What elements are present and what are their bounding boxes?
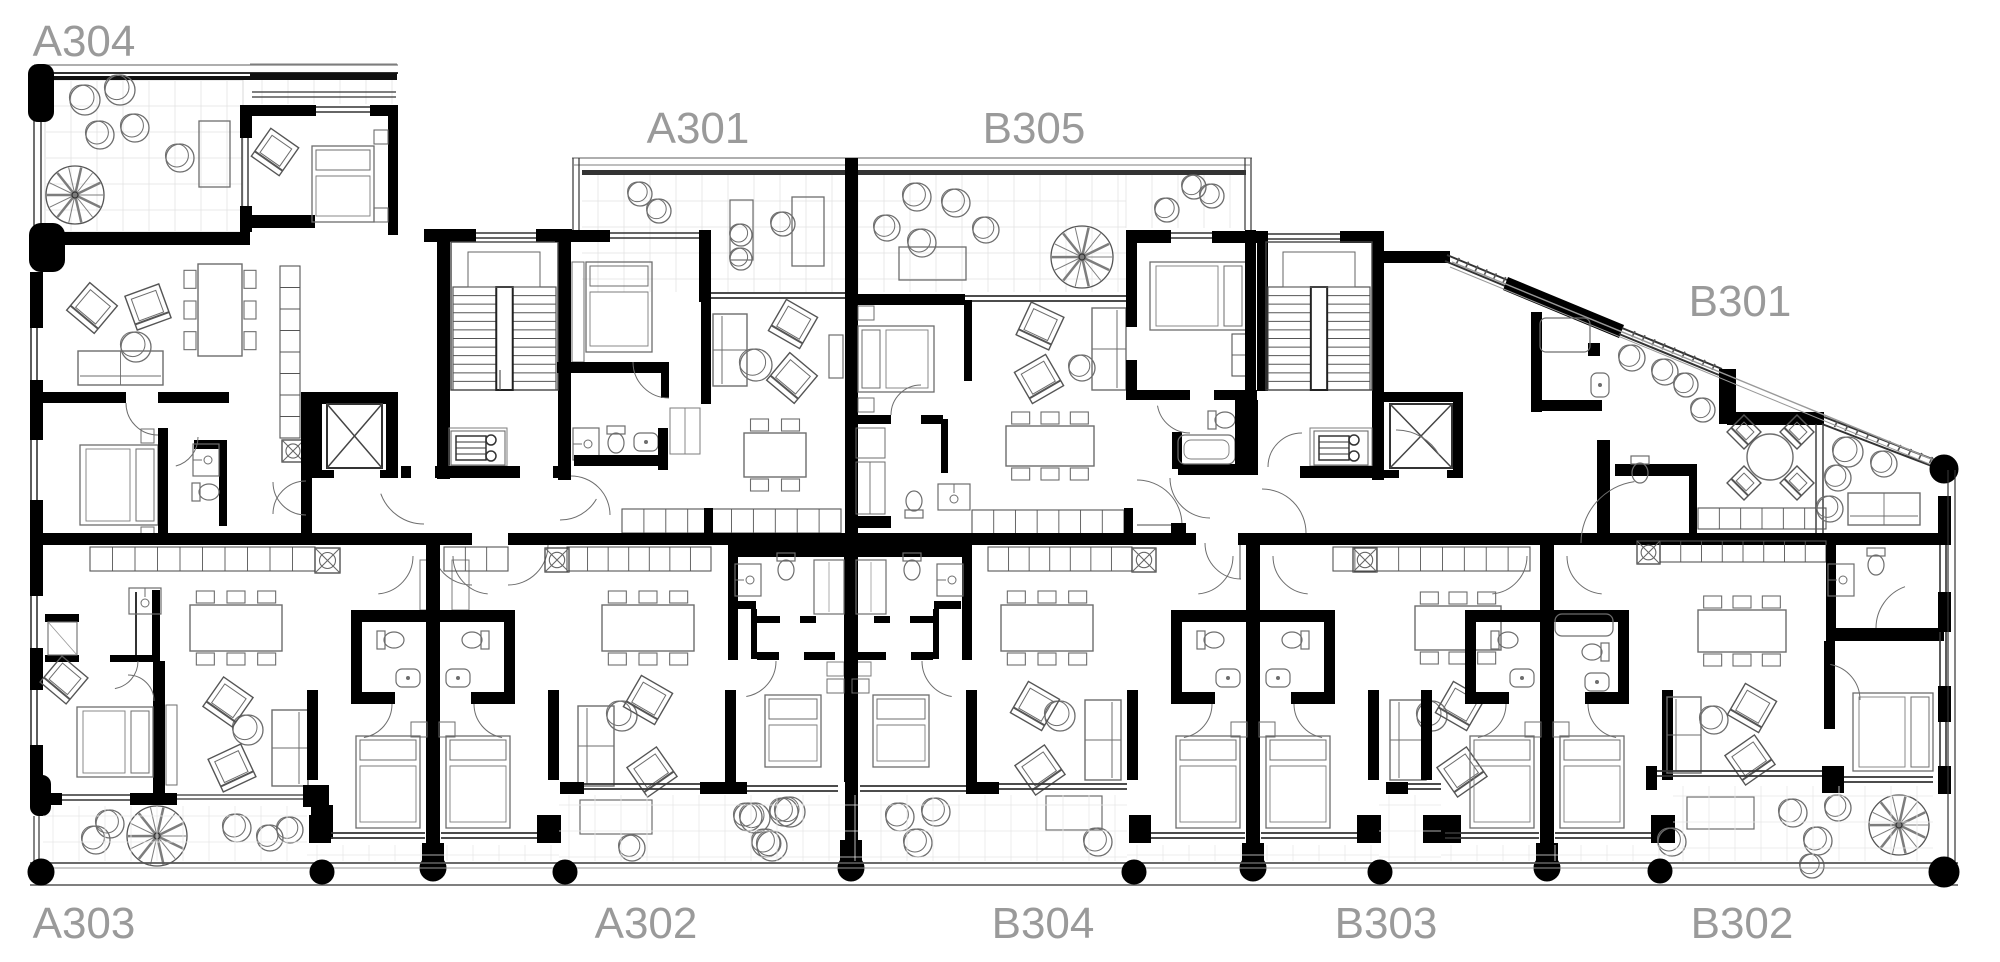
svg-text:B305: B305: [983, 104, 1086, 153]
svg-text:B304: B304: [992, 899, 1095, 948]
svg-text:A301: A301: [647, 104, 750, 153]
svg-text:A303: A303: [33, 899, 136, 948]
svg-text:B302: B302: [1691, 899, 1794, 948]
svg-text:B303: B303: [1335, 899, 1438, 948]
svg-text:B301: B301: [1689, 277, 1792, 326]
svg-text:A302: A302: [595, 899, 698, 948]
svg-text:A304: A304: [33, 17, 136, 66]
